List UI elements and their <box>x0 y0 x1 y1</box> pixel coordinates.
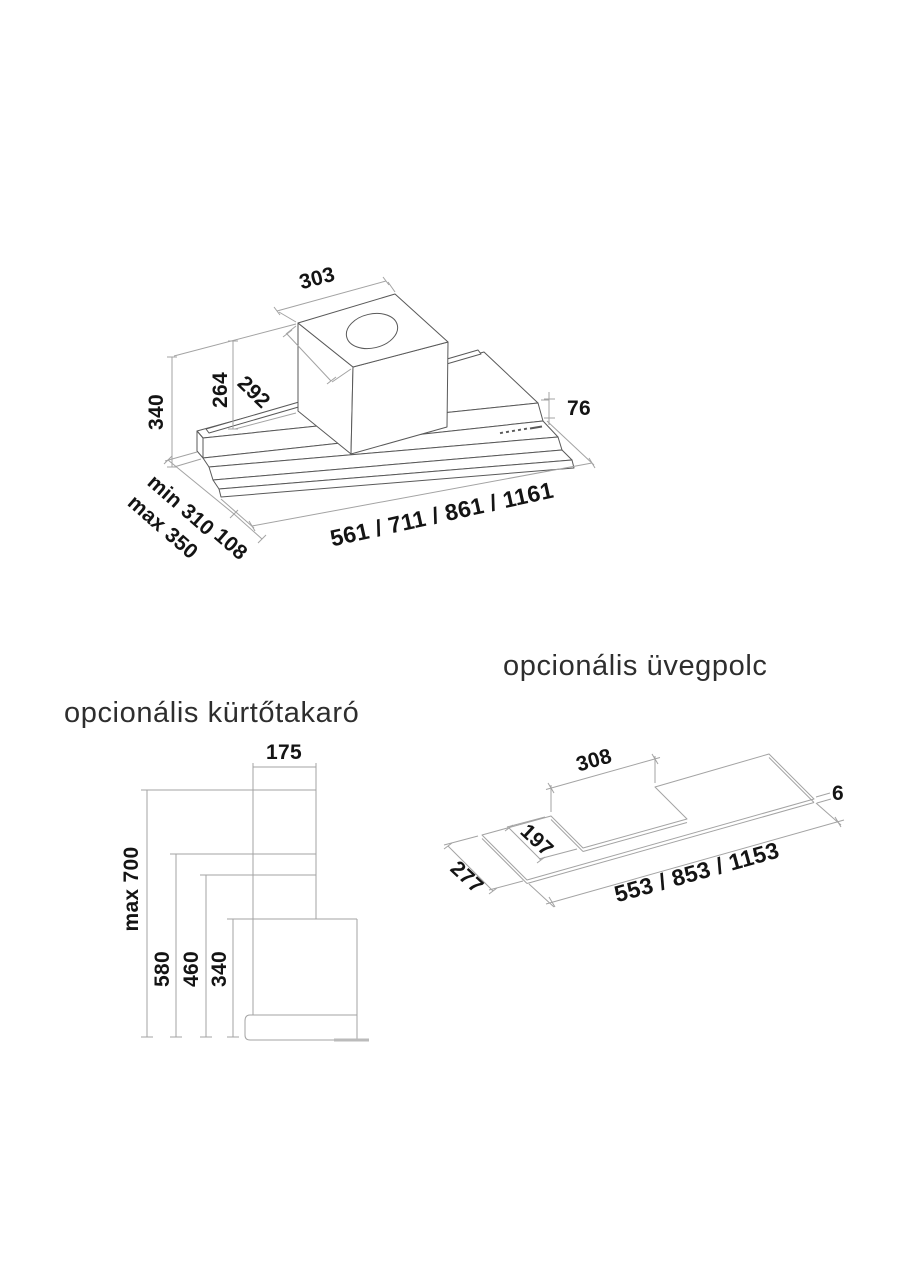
dim-label-chimney-h580: 580 <box>151 951 174 987</box>
chimney-outline <box>147 763 357 1040</box>
dim-label-shelf-thickness: 6 <box>832 782 844 805</box>
glass-shelf-figure: 308 6 197 277 553 / 853 / 1153 <box>444 744 844 907</box>
diagram-canvas: 303 292 264 340 76 min 310 max 350 108 5… <box>0 0 905 1280</box>
technical-drawing: 303 292 264 340 76 min 310 max 350 108 5… <box>0 0 905 1280</box>
dim-label-hood-front-height: 76 <box>567 397 591 420</box>
dim-label-hood-widths: 561 / 711 / 861 / 1161 <box>328 477 556 552</box>
dim-label-chimney-max-height: max 700 <box>120 846 143 931</box>
title-chimney-cover: opcionális kürtőtakaró <box>64 697 359 729</box>
dim-label-hood-top-width: 303 <box>297 263 338 295</box>
dim-label-hood-total-height: 340 <box>145 394 168 430</box>
dim-label-chimney-width: 175 <box>266 741 302 764</box>
dim-label-hood-box-height: 264 <box>209 372 232 408</box>
dim-label-hood-slide-out: 108 <box>210 524 252 565</box>
dim-label-hood-box-depth: 292 <box>233 372 275 414</box>
title-glass-shelf: opcionális üvegpolc <box>503 650 768 682</box>
chimney-dimension-lines <box>141 790 239 1037</box>
dim-label-chimney-h460: 460 <box>180 951 203 987</box>
dim-label-chimney-h340: 340 <box>208 951 231 987</box>
chimney-cover-figure: 175 max 700 580 460 340 <box>120 741 369 1040</box>
dim-label-shelf-depth: 277 <box>446 857 488 898</box>
hood-isometric-figure: 303 292 264 340 76 min 310 max 350 108 5… <box>123 263 595 565</box>
